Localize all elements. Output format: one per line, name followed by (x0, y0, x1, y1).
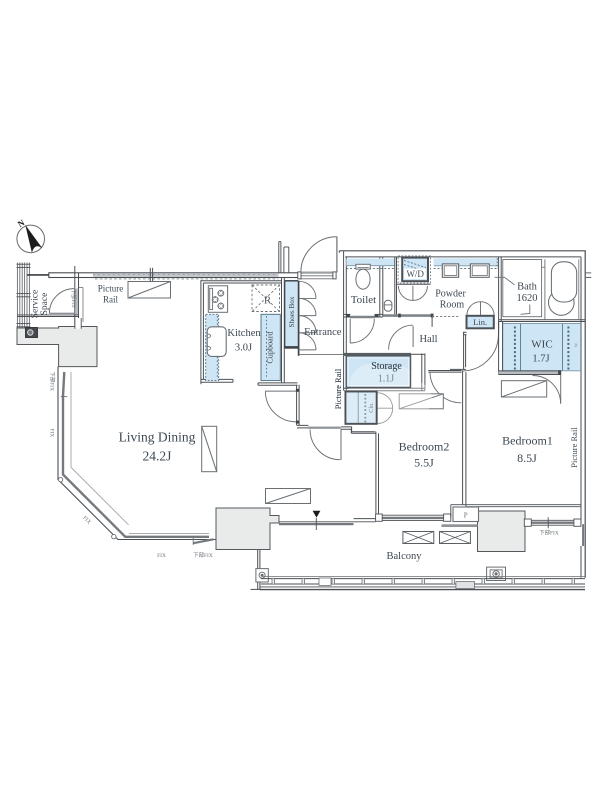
svg-text:Room: Room (440, 300, 465, 311)
svg-text:Picture Rail: Picture Rail (569, 427, 579, 468)
svg-text:1.7J: 1.7J (532, 354, 549, 365)
svg-text:1620: 1620 (517, 293, 538, 304)
svg-text:Bath: Bath (517, 282, 538, 293)
svg-text:P: P (464, 512, 468, 520)
svg-text:Bedroom1: Bedroom1 (502, 434, 553, 448)
svg-text:3.0J: 3.0J (235, 343, 252, 354)
svg-text:下部FIX: 下部FIX (70, 289, 78, 308)
svg-text:WIC: WIC (531, 339, 552, 351)
svg-text:24.2J: 24.2J (143, 449, 172, 464)
svg-text:Hall: Hall (419, 334, 437, 345)
svg-text:Powder: Powder (435, 289, 466, 300)
svg-text:Kitchen: Kitchen (227, 328, 261, 339)
svg-text:下部FIX: 下部FIX (193, 551, 213, 559)
svg-text:Space: Space (40, 293, 50, 316)
svg-text:Entrance: Entrance (304, 327, 342, 338)
svg-text:5.5J: 5.5J (414, 456, 434, 470)
svg-text:Rail: Rail (103, 295, 118, 305)
svg-text:Bedroom2: Bedroom2 (399, 440, 450, 454)
svg-text:FIX: FIX (49, 429, 55, 438)
svg-text:Lin.: Lin. (473, 317, 487, 327)
svg-text:下部FIX: 下部FIX (49, 372, 57, 392)
svg-text:W/D: W/D (406, 269, 424, 279)
svg-text:Storage: Storage (371, 361, 402, 372)
svg-text:Living Dining: Living Dining (119, 430, 196, 445)
svg-text:FIX: FIX (157, 553, 166, 559)
svg-text:下部FIX: 下部FIX (539, 529, 559, 537)
svg-text:Toilet: Toilet (351, 294, 377, 306)
svg-text:Balcony: Balcony (387, 551, 423, 562)
svg-text:R: R (264, 295, 272, 307)
svg-text:Shoes Box: Shoes Box (288, 296, 296, 327)
svg-text:Picture: Picture (98, 284, 124, 294)
svg-text:8.5J: 8.5J (517, 451, 537, 465)
svg-text:Cupboard: Cupboard (266, 331, 275, 363)
svg-text:Picture Rail: Picture Rail (333, 368, 343, 409)
